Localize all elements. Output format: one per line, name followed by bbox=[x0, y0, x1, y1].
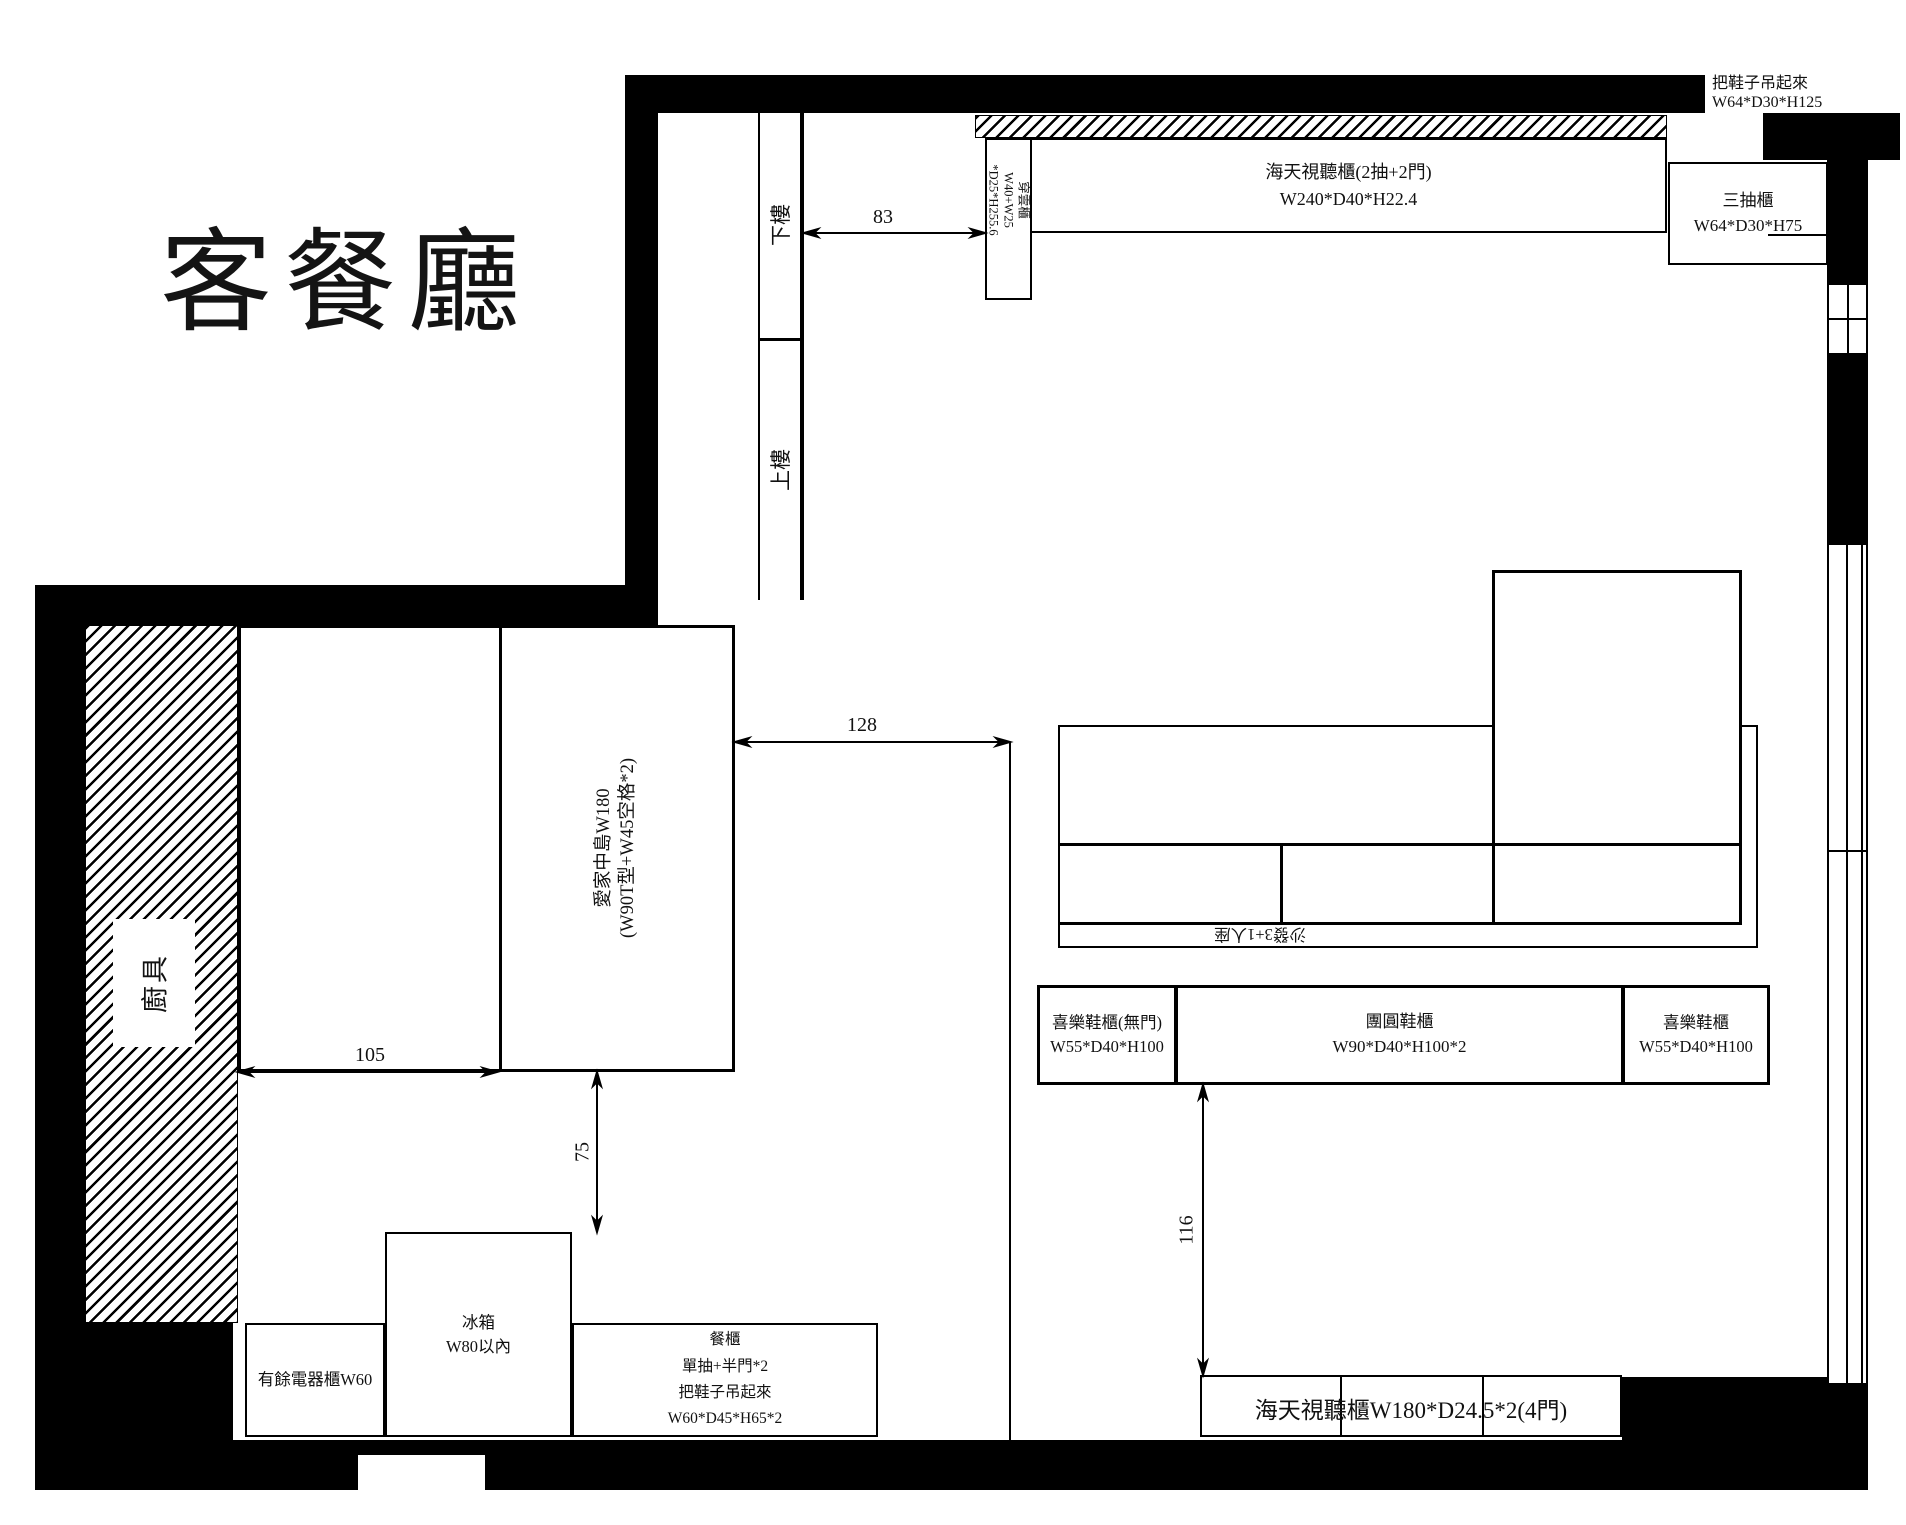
av-cabinet-bottom-label: 海天視聽櫃W180*D24.5*2(4門) bbox=[1200, 1391, 1622, 1425]
kitchen-label: 廚具 bbox=[134, 953, 173, 1013]
sofa-seat-divider bbox=[1280, 843, 1283, 923]
window-tall-icon bbox=[1827, 543, 1868, 1385]
island-label: 愛家中島W180 (W90T型+W45空格*2) bbox=[592, 758, 640, 938]
stairs-up-label: 上樓 bbox=[765, 449, 795, 491]
sofa-seat-line bbox=[1058, 843, 1742, 846]
island-divider bbox=[499, 628, 502, 1069]
sofa-front-line bbox=[1058, 922, 1742, 925]
dim-75-label: 75 bbox=[572, 1142, 595, 1162]
page-title: 客餐廳 bbox=[160, 192, 532, 354]
door-opening bbox=[358, 1455, 485, 1490]
wall-top bbox=[625, 75, 1705, 113]
av-cabinet-top-box: 海天視聽櫃(2抽+2門) W240*D40*H22.4 bbox=[1030, 138, 1667, 233]
floor-plan-canvas: 廚具 下樓 上樓 穿雲櫃 W40+W25 *D25*H255.6 海天視聽櫃(2… bbox=[0, 0, 1906, 1525]
shoe-cabinet-right-box: 喜樂鞋櫃 W55*D40*H100 bbox=[1622, 985, 1770, 1085]
chuanyun-cabinet-label: 穿雲櫃 W40+W25 *D25*H255.6 bbox=[986, 164, 1031, 235]
wall-kitchen-bottom-block bbox=[85, 1323, 233, 1440]
wall-right-lower bbox=[1827, 1385, 1868, 1440]
hang-shoes-note: 把鞋子吊起來 W64*D30*H125 bbox=[1712, 74, 1822, 112]
appliance-cabinet-box: 有餘電器櫃W60 bbox=[245, 1323, 385, 1437]
dim-116-label: 116 bbox=[1176, 1215, 1199, 1244]
stairs-strip bbox=[758, 113, 804, 600]
three-drawer-cabinet-box: 三抽櫃 W64*D30*H75 bbox=[1668, 162, 1828, 265]
wall-top-right-corner bbox=[1763, 113, 1900, 160]
hatch-top-strip bbox=[975, 115, 1667, 138]
wall-bottom bbox=[35, 1440, 1868, 1490]
shoe-cabinet-mid-box: 團圓鞋櫃 W90*D40*H100*2 bbox=[1175, 985, 1624, 1085]
wall-right-mid bbox=[1827, 355, 1868, 543]
wall-left-top bbox=[35, 585, 658, 625]
island-box bbox=[238, 625, 735, 1072]
shoe-cabinet-left-box: 喜樂鞋櫃(無門) W55*D40*H100 bbox=[1037, 985, 1177, 1085]
sideboard-box: 餐櫃 單抽+半門*2 把鞋子吊起來 W60*D45*H65*2 bbox=[572, 1323, 878, 1437]
stairs-divider bbox=[760, 338, 800, 341]
stairs-down-label: 下樓 bbox=[765, 204, 795, 246]
window-small-icon bbox=[1827, 283, 1868, 355]
dim-83-label: 83 bbox=[855, 206, 911, 229]
wall-left bbox=[35, 625, 85, 1490]
dim-105-label: 105 bbox=[340, 1044, 400, 1067]
wall-stairwell bbox=[625, 113, 658, 625]
fridge-box: 冰箱 W80以內 bbox=[385, 1232, 572, 1437]
sofa-label: 沙發3+1人座 bbox=[1214, 924, 1306, 948]
wall-right-upper bbox=[1827, 160, 1868, 283]
sofa-chaise bbox=[1492, 570, 1742, 925]
dim-128-label: 128 bbox=[832, 714, 892, 737]
